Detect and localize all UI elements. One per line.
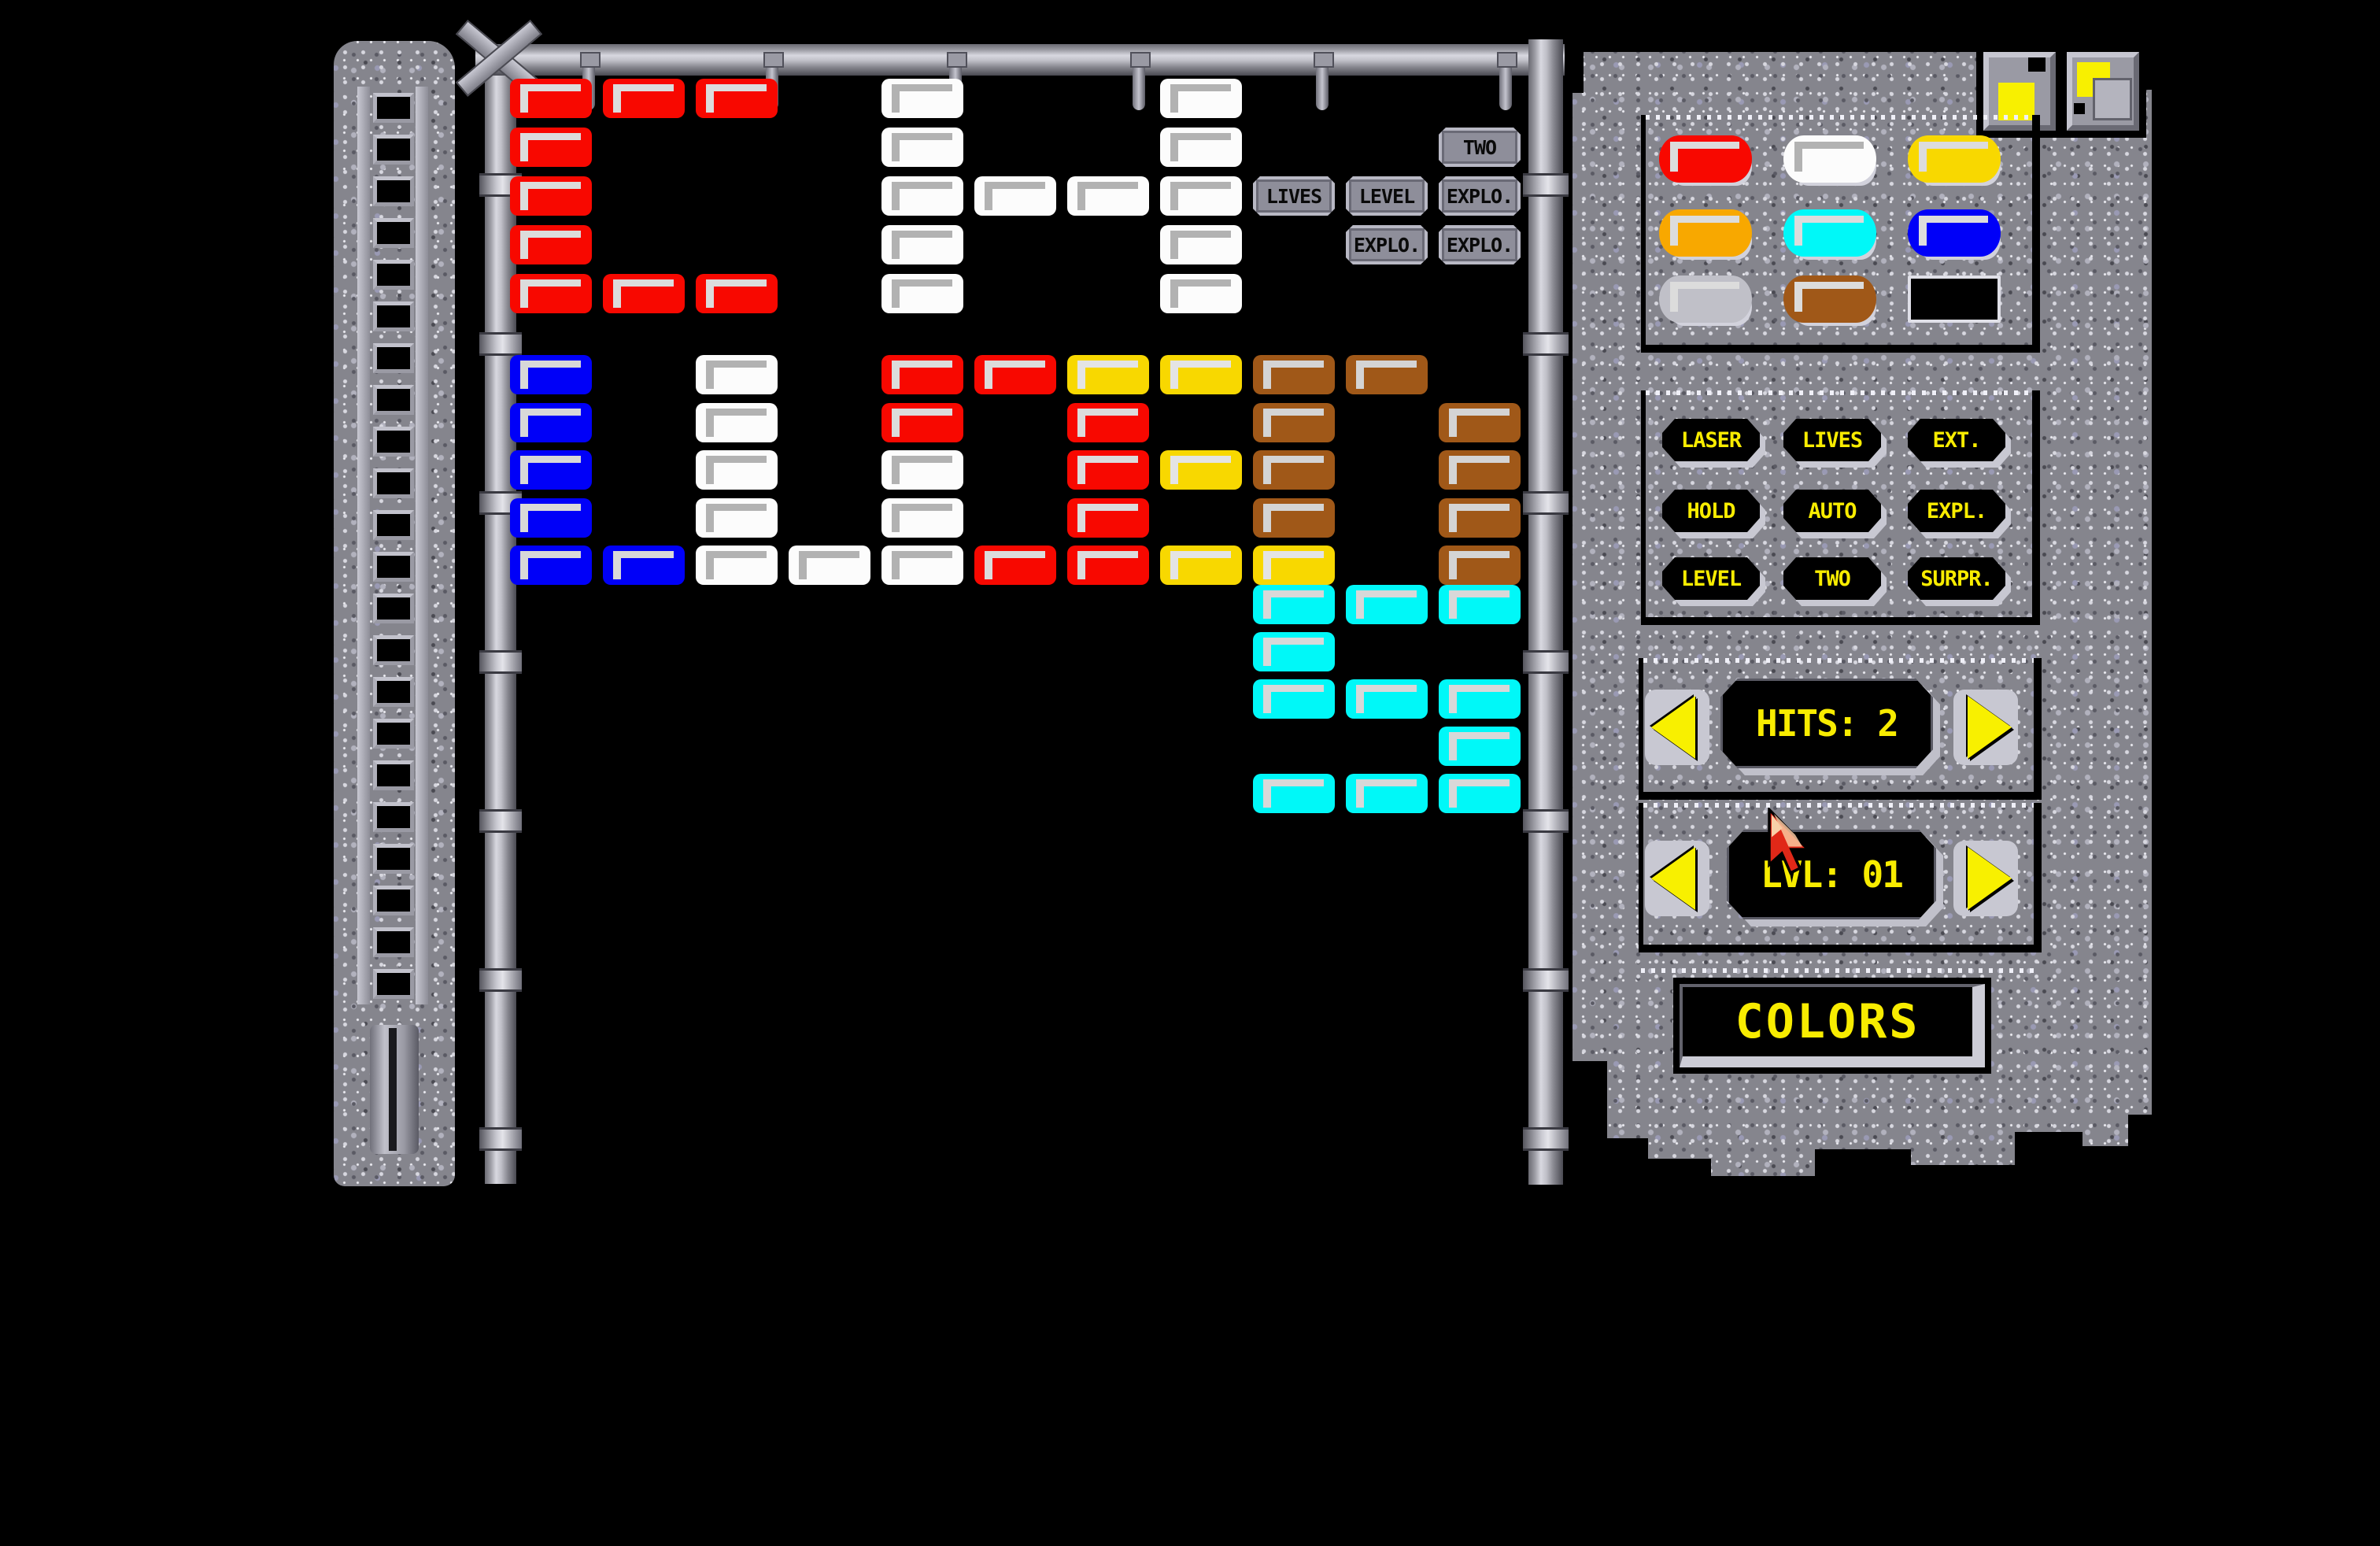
brick[interactable] bbox=[1346, 679, 1428, 719]
brick[interactable] bbox=[1439, 546, 1521, 585]
mouse-cursor bbox=[1761, 808, 1816, 886]
brick[interactable] bbox=[510, 355, 592, 394]
brick[interactable] bbox=[510, 498, 592, 538]
brick[interactable] bbox=[881, 403, 963, 442]
panel-top-edge bbox=[1646, 115, 2032, 120]
brick-label: EXPLO. bbox=[1447, 185, 1513, 208]
icon-notch bbox=[2028, 57, 2046, 72]
brick[interactable] bbox=[1253, 632, 1335, 671]
hits-value: 2 bbox=[1877, 702, 1898, 745]
brick[interactable] bbox=[696, 355, 778, 394]
brick[interactable] bbox=[881, 128, 963, 167]
brick[interactable] bbox=[974, 176, 1056, 216]
brick-label: EXPLO. bbox=[1447, 234, 1513, 257]
attribute-button-label: EXPL. bbox=[1927, 499, 1986, 523]
brick-label: TWO bbox=[1463, 136, 1496, 159]
powerup-brick[interactable]: LEVEL bbox=[1346, 176, 1428, 216]
brick[interactable] bbox=[881, 225, 963, 264]
brick-label: LIVES bbox=[1266, 185, 1321, 208]
attribute-button-auto[interactable]: AUTO bbox=[1783, 490, 1881, 532]
palette-swatch-orange[interactable] bbox=[1659, 209, 1752, 257]
brick[interactable] bbox=[1160, 274, 1242, 313]
powerup-brick[interactable]: TWO bbox=[1439, 128, 1521, 167]
brick-label: EXPLO. bbox=[1354, 234, 1420, 257]
attribute-button-expl[interactable]: EXPL. bbox=[1908, 490, 2005, 532]
ladder-rung-hole bbox=[373, 927, 414, 957]
colors-section-edge bbox=[1641, 968, 2034, 973]
brick[interactable] bbox=[1067, 450, 1149, 490]
powerup-brick[interactable]: EXPLO. bbox=[1439, 176, 1521, 216]
brick[interactable] bbox=[1346, 585, 1428, 624]
brick[interactable] bbox=[1160, 225, 1242, 264]
brick[interactable] bbox=[881, 176, 963, 216]
palette-swatch-yellow[interactable] bbox=[1908, 135, 2001, 183]
ladder-rung-hole bbox=[373, 886, 414, 915]
hits-display: HITS: 2 bbox=[1720, 679, 1933, 768]
level-decrease-button[interactable] bbox=[1651, 847, 1695, 910]
attribute-button-surpr[interactable]: SURPR. bbox=[1908, 557, 2005, 600]
column-slot bbox=[370, 1025, 419, 1154]
palette-swatch-silver[interactable] bbox=[1659, 276, 1752, 323]
brick[interactable] bbox=[510, 403, 592, 442]
colors-button[interactable]: COLORS bbox=[1673, 978, 1991, 1074]
attribute-button-label: LIVES bbox=[1802, 428, 1862, 453]
palette-swatch-brown[interactable] bbox=[1783, 276, 1876, 323]
attribute-button-laser[interactable]: LASER bbox=[1662, 419, 1760, 461]
brick[interactable] bbox=[1253, 355, 1335, 394]
icon-notch bbox=[2074, 103, 2085, 114]
brick[interactable] bbox=[1346, 774, 1428, 813]
gray-pane-front bbox=[2093, 78, 2132, 120]
brick[interactable] bbox=[1253, 546, 1335, 585]
hits-display-wrap: HITS: 2 bbox=[1720, 679, 1933, 768]
attribute-button-label: EXT. bbox=[1932, 428, 1980, 453]
pipe-collar bbox=[1523, 968, 1569, 992]
attribute-button-label: LEVEL bbox=[1681, 567, 1741, 591]
brick[interactable] bbox=[881, 498, 963, 538]
attribute-button-label: SURPR. bbox=[1920, 567, 1993, 591]
brick[interactable] bbox=[696, 274, 778, 313]
brick[interactable] bbox=[974, 546, 1056, 585]
right-arrow-icon bbox=[1968, 847, 2012, 910]
ladder-rung-hole bbox=[373, 969, 414, 999]
brick[interactable] bbox=[510, 225, 592, 264]
level-value: 01 bbox=[1862, 853, 1902, 896]
brick[interactable] bbox=[510, 274, 592, 313]
powerup-brick[interactable]: LIVES bbox=[1253, 176, 1335, 216]
playfield: TWOLIVESLEVELEXPLO.EXPLO.EXPLO. bbox=[0, 0, 1574, 866]
editor-screen: TWOLIVESLEVELEXPLO.EXPLO.EXPLO. LASERLIV… bbox=[0, 0, 2380, 1546]
attribute-button-lives[interactable]: LIVES bbox=[1783, 419, 1881, 461]
brick[interactable] bbox=[1160, 128, 1242, 167]
brick[interactable] bbox=[1160, 79, 1242, 118]
left-arrow-icon bbox=[1651, 847, 1695, 910]
brick-label: LEVEL bbox=[1359, 185, 1414, 208]
brick[interactable] bbox=[1253, 498, 1335, 538]
brick[interactable] bbox=[1160, 176, 1242, 216]
palette-swatch-blue[interactable] bbox=[1908, 209, 2001, 257]
brick[interactable] bbox=[1067, 498, 1149, 538]
hits-decrease-button[interactable] bbox=[1651, 696, 1695, 759]
panel-top-edge bbox=[1643, 658, 2034, 663]
palette-swatch-red[interactable] bbox=[1659, 135, 1752, 183]
brick[interactable] bbox=[1160, 355, 1242, 394]
attribute-button-label: LASER bbox=[1681, 428, 1741, 453]
brick[interactable] bbox=[1067, 546, 1149, 585]
brick[interactable] bbox=[1439, 450, 1521, 490]
colors-button-label: COLORS bbox=[1735, 994, 1920, 1049]
brick[interactable] bbox=[510, 546, 592, 585]
attribute-button-level[interactable]: LEVEL bbox=[1662, 557, 1760, 600]
panel-top-edge bbox=[1643, 803, 2034, 808]
level-display: LVL: 01 bbox=[1727, 830, 1936, 919]
brick[interactable] bbox=[1346, 355, 1428, 394]
brick[interactable] bbox=[510, 450, 592, 490]
brick[interactable] bbox=[1253, 450, 1335, 490]
right-arrow-icon bbox=[1968, 696, 2012, 759]
brick[interactable] bbox=[1067, 403, 1149, 442]
brick[interactable] bbox=[881, 355, 963, 394]
left-arrow-icon bbox=[1651, 696, 1695, 759]
brick[interactable] bbox=[881, 274, 963, 313]
brick[interactable] bbox=[881, 546, 963, 585]
brick[interactable] bbox=[603, 546, 685, 585]
brick[interactable] bbox=[974, 355, 1056, 394]
brick[interactable] bbox=[881, 79, 963, 118]
brick[interactable] bbox=[696, 546, 778, 585]
restore-window-icon[interactable] bbox=[2067, 52, 2139, 131]
brick[interactable] bbox=[1067, 355, 1149, 394]
powerup-brick[interactable]: EXPLO. bbox=[1346, 225, 1428, 264]
attribute-button-hold[interactable]: HOLD bbox=[1662, 490, 1760, 532]
attribute-buttons-panel: LASERLIVESEXT.HOLDAUTOEXPL.LEVELTWOSURPR… bbox=[1641, 390, 2040, 625]
hits-label: HITS: bbox=[1756, 702, 1857, 745]
attribute-button-label: TWO bbox=[1814, 567, 1850, 591]
hits-increase-button[interactable] bbox=[1968, 696, 2012, 759]
brick[interactable] bbox=[1439, 403, 1521, 442]
color-palette-panel bbox=[1641, 115, 2040, 353]
brick[interactable] bbox=[510, 79, 592, 118]
attribute-button-label: AUTO bbox=[1808, 499, 1856, 523]
palette-swatch-cyan[interactable] bbox=[1783, 209, 1876, 257]
brick[interactable] bbox=[696, 403, 778, 442]
palette-swatch-white[interactable] bbox=[1783, 135, 1876, 183]
brick[interactable] bbox=[1253, 774, 1335, 813]
attribute-button-two[interactable]: TWO bbox=[1783, 557, 1881, 600]
brick[interactable] bbox=[603, 274, 685, 313]
brick[interactable] bbox=[603, 79, 685, 118]
brick[interactable] bbox=[696, 450, 778, 490]
brick[interactable] bbox=[1160, 546, 1242, 585]
brick[interactable] bbox=[1439, 727, 1521, 766]
brick[interactable] bbox=[1253, 403, 1335, 442]
powerup-brick[interactable]: EXPLO. bbox=[1439, 225, 1521, 264]
brick[interactable] bbox=[696, 498, 778, 538]
level-increase-button[interactable] bbox=[1968, 847, 2012, 910]
brick[interactable] bbox=[789, 546, 870, 585]
brick[interactable] bbox=[1439, 498, 1521, 538]
brick[interactable] bbox=[881, 450, 963, 490]
brick[interactable] bbox=[510, 176, 592, 216]
attribute-button-ext[interactable]: EXT. bbox=[1908, 419, 2005, 461]
brick[interactable] bbox=[1253, 679, 1335, 719]
pipe-collar bbox=[479, 968, 522, 992]
brick[interactable] bbox=[510, 128, 592, 167]
palette-swatch-black[interactable] bbox=[1908, 276, 2001, 323]
brick[interactable] bbox=[1439, 585, 1521, 624]
level-display-wrap: LVL: 01 bbox=[1727, 830, 1936, 919]
brick[interactable] bbox=[1253, 585, 1335, 624]
brick[interactable] bbox=[696, 79, 778, 118]
brick[interactable] bbox=[1067, 176, 1149, 216]
pipe-collar bbox=[479, 1127, 522, 1151]
brick[interactable] bbox=[1439, 774, 1521, 813]
panel-top-edge bbox=[1646, 390, 2032, 395]
pipe-collar bbox=[1523, 1127, 1569, 1151]
brick[interactable] bbox=[1439, 679, 1521, 719]
attribute-button-label: HOLD bbox=[1687, 499, 1735, 523]
brick[interactable] bbox=[1160, 450, 1242, 490]
